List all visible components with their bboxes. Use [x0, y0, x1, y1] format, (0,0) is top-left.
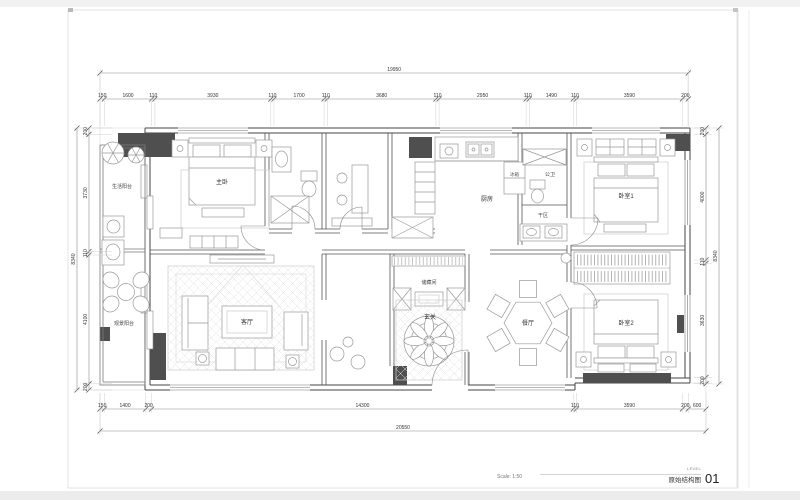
sheet-corner-mark [733, 8, 738, 12]
chair [351, 355, 365, 369]
chair [337, 195, 347, 205]
dim-label: 200 [681, 403, 690, 409]
dim-label: 200 [700, 376, 706, 385]
foyer-floor [396, 300, 462, 380]
dim-label: 110 [571, 93, 579, 99]
dim-label: 3590 [624, 403, 635, 409]
bed [594, 300, 658, 363]
dim-label: 3630 [700, 315, 706, 326]
dim-label: 3730 [83, 187, 89, 198]
dim-label: 3930 [207, 93, 218, 99]
nightstand [661, 352, 676, 367]
chair [546, 294, 569, 317]
room-label-bedroom2: 卧室2 [618, 319, 634, 327]
dim-label: 2950 [477, 93, 488, 99]
dim-label: 200 [144, 403, 153, 409]
dim-label: 4000 [700, 191, 706, 202]
dresser [630, 364, 656, 372]
dim-label: 110 [434, 93, 442, 99]
room-label-foyer: 玄关 [424, 313, 436, 321]
chair [520, 349, 537, 366]
bedroom2-furniture [576, 294, 676, 372]
master-bedroom-furniture [160, 138, 272, 248]
room-label-life-balcony: 生活阳台 [112, 183, 132, 190]
dim-label: 200 [700, 127, 706, 136]
desk [352, 165, 368, 213]
dim-label: 1490 [546, 93, 557, 99]
sheet-title: 原始结构图 [669, 475, 702, 484]
dim-label: 3590 [624, 93, 635, 99]
master-bed [189, 138, 255, 205]
nightstand [576, 352, 591, 367]
study-furniture [332, 165, 372, 226]
chair [546, 328, 569, 351]
dim-label: 150 [98, 93, 107, 99]
dim-label: 110 [268, 93, 276, 99]
tall-cabinet [415, 162, 435, 214]
dim-label: 1400 [119, 403, 130, 409]
dresser [160, 228, 182, 238]
dim-label: 110 [322, 93, 330, 99]
side-table [286, 355, 299, 368]
label-fridge: 冰箱 [510, 171, 519, 178]
room-label-master-bedroom: 主卧 [216, 178, 228, 186]
dresser [598, 364, 624, 372]
floor-medallion [404, 316, 454, 366]
floor-plan-sheet: 生活阳台 主卧 厨房 冰箱 公卫 干区 卧室1 观景阳台 客厅 储藏间 玄关 餐… [0, 0, 800, 500]
kitchen-sink [466, 142, 494, 157]
dim-label: 8340 [71, 253, 77, 264]
dim-label: 110 [571, 403, 579, 409]
room-label-view-balcony: 观景阳台 [114, 320, 134, 327]
room-label-bedroom1: 卧室1 [618, 192, 634, 200]
dim-label: 1600 [122, 93, 133, 99]
dim-label: 110 [149, 93, 157, 99]
master-bedroom-door [241, 226, 265, 250]
sliding-door [141, 165, 153, 349]
sheet-corner-mark [68, 8, 73, 12]
chair [330, 347, 344, 361]
dim-label: 150 [98, 403, 107, 409]
room-label-living-room: 客厅 [241, 318, 253, 326]
toilet [530, 180, 545, 189]
cooktop [440, 144, 458, 158]
room-label-storage: 储藏间 [421, 279, 436, 286]
floor-plan-drawing: 生活阳台 主卧 厨房 冰箱 公卫 干区 卧室1 观景阳台 客厅 储藏间 玄关 餐… [0, 0, 800, 500]
room-label-kitchen: 厨房 [481, 195, 493, 203]
nightstand [577, 139, 592, 156]
washbasin [523, 226, 540, 238]
dim-label: 110 [83, 249, 89, 257]
dim-label: 20550 [396, 425, 410, 431]
chair [487, 328, 510, 351]
dim-label: 19950 [387, 67, 401, 73]
sofa [216, 348, 274, 370]
bed [594, 157, 658, 222]
walkthrough-wardrobe [561, 252, 670, 284]
nightstand [256, 140, 272, 157]
armchair [284, 312, 308, 350]
nightstand [172, 140, 188, 157]
washing-machine [103, 216, 124, 237]
lounge-furniture [330, 337, 365, 369]
round-table [343, 337, 353, 347]
dim-label: 3680 [376, 93, 387, 99]
room-label-guest-bath: 公卫 [545, 172, 555, 178]
dim-label: 8340 [713, 250, 719, 261]
dim-label: 1700 [293, 93, 304, 99]
dim-label: 600 [693, 403, 702, 409]
chair [337, 173, 347, 183]
chair [520, 281, 537, 298]
room-label-dining-room: 餐厅 [522, 319, 534, 327]
washbasin [545, 226, 562, 238]
dim-label: 110 [524, 93, 532, 99]
bench [604, 224, 646, 232]
sheet-number: 01 [705, 471, 719, 486]
stool [561, 253, 571, 263]
life-balcony-fixtures [102, 142, 144, 265]
dim-label: 14300 [355, 403, 369, 409]
level-label: LEVEL [687, 466, 701, 471]
dim-label: 4100 [83, 314, 89, 325]
cabinet [332, 218, 372, 226]
title-block: Scale: 1:50 LEVEL 原始结构图 01 [497, 466, 719, 486]
dim-label: 110 [700, 258, 706, 266]
guest-bath-fixtures [520, 149, 567, 241]
room-label-dry-area: 干区 [538, 213, 548, 219]
nightstand [660, 139, 675, 156]
scale-label: Scale: 1:50 [497, 474, 522, 480]
master-bathroom-fixtures [271, 147, 317, 223]
bedroom1-furniture [577, 139, 675, 234]
living-room-furniture [168, 255, 314, 370]
chair [487, 294, 510, 317]
toilet [301, 171, 317, 181]
bench [202, 208, 244, 217]
side-table [196, 352, 209, 365]
